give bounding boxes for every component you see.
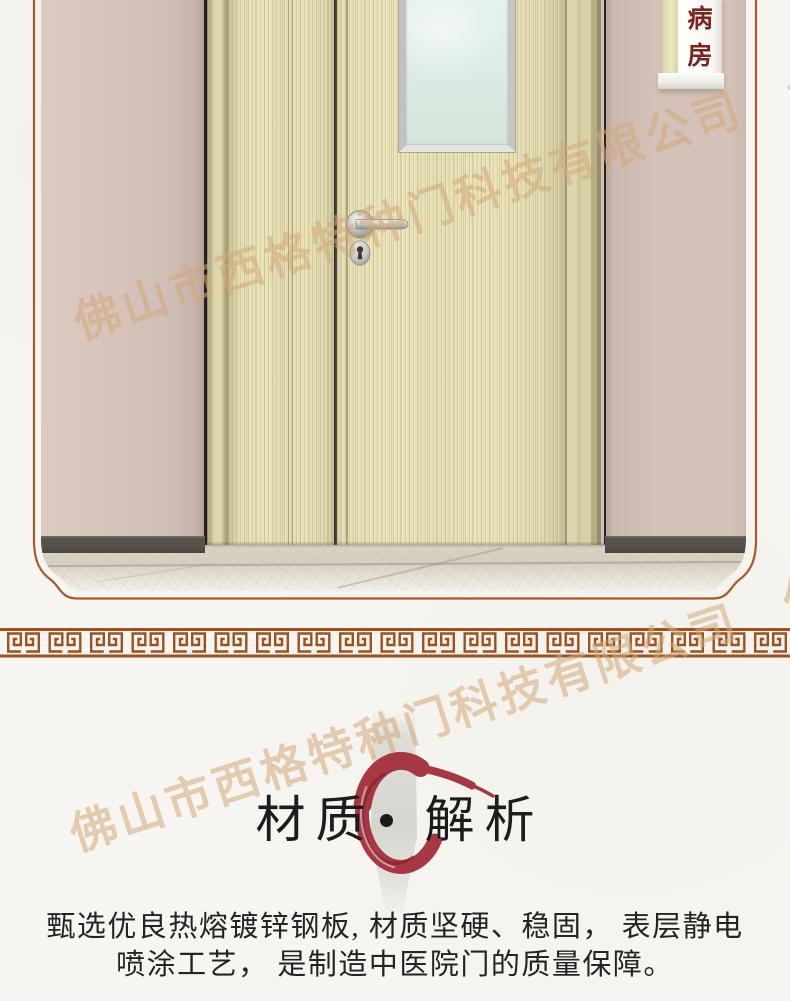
section-title-right: 解析 — [415, 790, 545, 850]
description-line-1: 甄选优良热熔镀锌钢板, 材质坚硬、稳固， 表层静电 — [0, 908, 790, 946]
door-leaf-left — [228, 0, 334, 549]
description-line-2: 喷涂工艺， 是制造中医院门的质量保障。 — [0, 946, 790, 984]
double-door — [204, 0, 606, 549]
door-groove — [288, 0, 289, 549]
door-scene: 病 房 — [41, 0, 746, 591]
door-frame-right — [567, 0, 601, 549]
meander-pattern — [0, 631, 790, 655]
meander-divider — [0, 628, 790, 658]
section-title: 材质 解析 — [0, 788, 790, 852]
door-astragal-line — [346, 0, 348, 549]
door-vision-window — [399, 0, 515, 152]
ward-sign-char: 房 — [687, 44, 712, 70]
baseboard-left — [41, 536, 205, 553]
section-description: 甄选优良热熔镀锌钢板, 材质坚硬、稳固， 表层静电 喷涂工艺， 是制造中医院门的… — [0, 908, 790, 984]
title-separator-dot — [380, 814, 393, 827]
wall-left — [41, 0, 204, 545]
ward-sign: 病 房 — [658, 0, 725, 92]
page: 病 房 佛山市西格特种门科技有限公司 佛山市西格特种门科技有限公司 佛山市西格特… — [0, 0, 790, 1001]
door-bottom-shadow — [204, 543, 606, 546]
door-handle — [342, 199, 426, 273]
ward-sign-plate: 病 房 — [678, 0, 722, 78]
ward-sign-cap — [658, 73, 724, 89]
meander-top-rule — [0, 628, 790, 631]
ward-sign-char: 病 — [687, 7, 712, 33]
baseboard-right — [605, 536, 746, 553]
ward-sign-edge — [663, 0, 678, 74]
door-frame-left — [207, 0, 229, 549]
floor-seam — [41, 561, 746, 567]
floor-seam — [337, 547, 503, 588]
door-groove — [292, 0, 293, 549]
section-title-left: 材质 — [246, 790, 376, 850]
meander-bottom-rule — [0, 655, 790, 658]
door-frame-gap-right — [604, 0, 607, 549]
handle-lever — [356, 220, 408, 229]
